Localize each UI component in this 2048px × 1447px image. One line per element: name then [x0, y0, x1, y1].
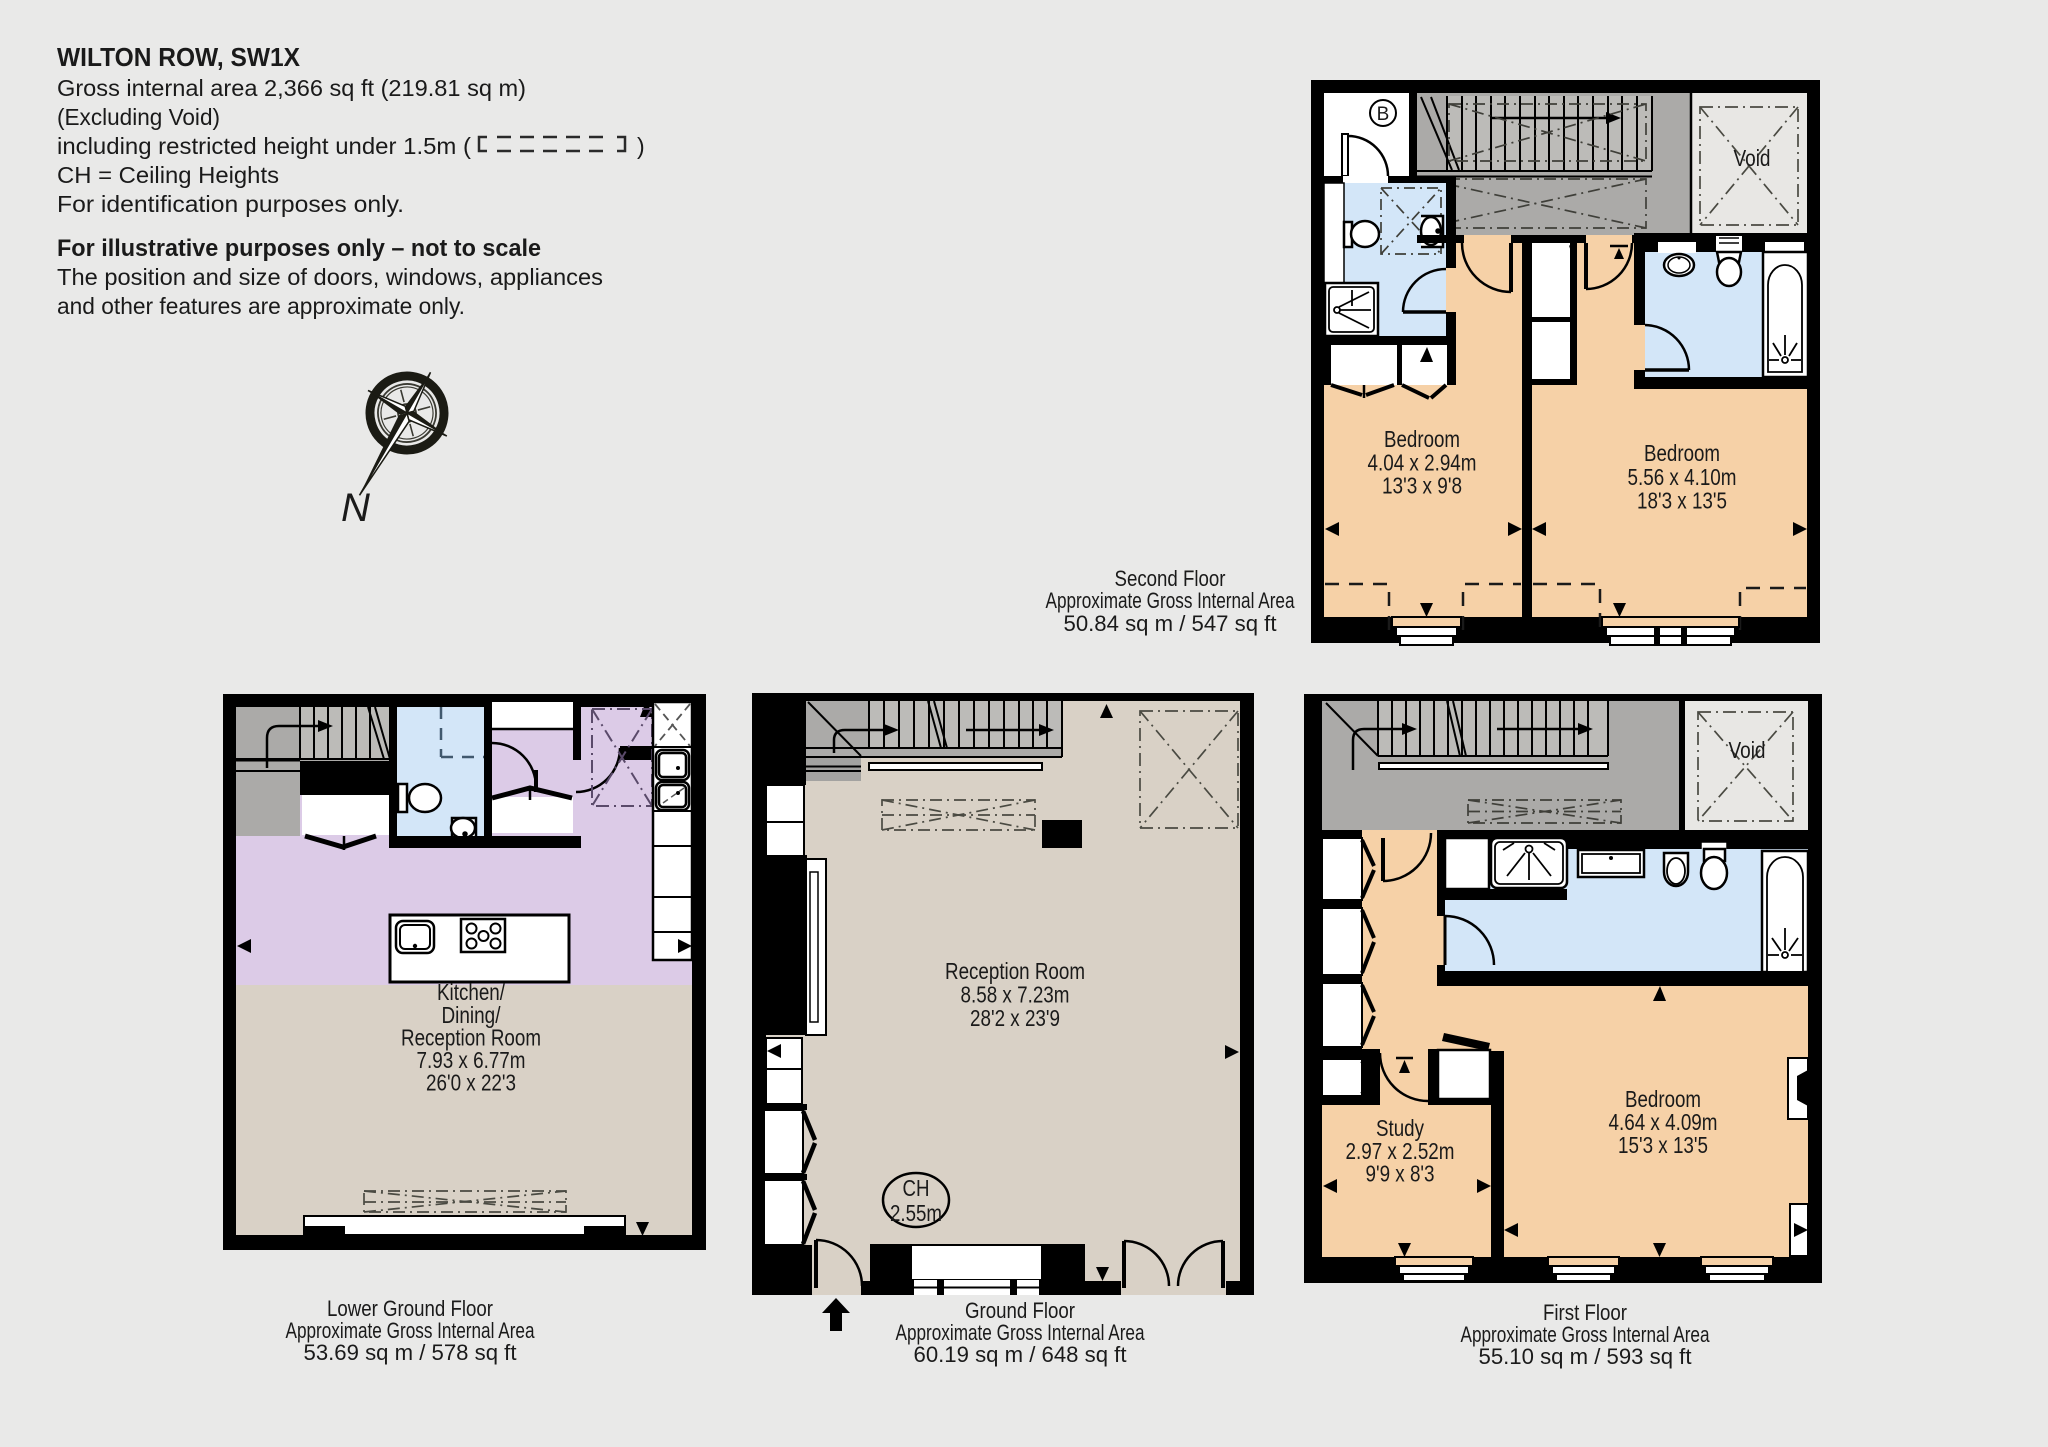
svg-text:): ) — [637, 133, 645, 159]
svg-text:Bedroom: Bedroom — [1384, 426, 1460, 452]
svg-text:including restricted height un: including restricted height under 1.5m ( — [57, 133, 471, 159]
svg-text:and other features are approxi: and other features are approximate only. — [57, 293, 465, 319]
svg-text:For illustrative purposes only: For illustrative purposes only – not to … — [57, 235, 541, 262]
svg-text:5.56 x 4.10m: 5.56 x 4.10m — [1628, 464, 1737, 490]
svg-text:53.69 sq m / 578 sq ft: 53.69 sq m / 578 sq ft — [304, 1340, 517, 1365]
svg-text:B: B — [1377, 104, 1390, 125]
svg-text:CH: CH — [903, 1175, 930, 1201]
svg-text:Reception Room: Reception Room — [945, 958, 1085, 984]
svg-text:26'0 x 22'3: 26'0 x 22'3 — [426, 1070, 516, 1096]
svg-text:50.84 sq m / 547 sq ft: 50.84 sq m / 547 sq ft — [1064, 611, 1277, 636]
svg-text:28'2 x 23'9: 28'2 x 23'9 — [970, 1005, 1060, 1031]
svg-text:Bedroom: Bedroom — [1644, 440, 1720, 466]
svg-text:9'9 x 8'3: 9'9 x 8'3 — [1366, 1161, 1435, 1187]
svg-text:15'3 x 13'5: 15'3 x 13'5 — [1618, 1132, 1708, 1158]
svg-text:Void: Void — [1734, 145, 1771, 171]
svg-text:2.55m: 2.55m — [890, 1200, 942, 1226]
svg-text:Void: Void — [1729, 737, 1766, 763]
svg-text:N: N — [341, 486, 370, 530]
svg-text:CH = Ceiling Heights: CH = Ceiling Heights — [57, 162, 279, 188]
svg-text:Gross internal area 2,366 sq f: Gross internal area 2,366 sq ft (219.81 … — [57, 75, 526, 101]
svg-text:8.58 x 7.23m: 8.58 x 7.23m — [961, 982, 1070, 1008]
svg-text:For identification purposes on: For identification purposes only. — [57, 191, 404, 217]
svg-text:55.10 sq m / 593 sq ft: 55.10 sq m / 593 sq ft — [1479, 1344, 1692, 1369]
svg-text:13'3 x 9'8: 13'3 x 9'8 — [1382, 473, 1462, 499]
svg-text:WILTON ROW, SW1X: WILTON ROW, SW1X — [57, 42, 301, 72]
svg-text:18'3 x 13'5: 18'3 x 13'5 — [1637, 488, 1727, 514]
svg-text:Approximate Gross Internal Are: Approximate Gross Internal Area — [1046, 588, 1296, 613]
svg-text:60.19 sq m / 648 sq ft: 60.19 sq m / 648 sq ft — [914, 1342, 1127, 1367]
svg-text:The position and size of doors: The position and size of doors, windows,… — [57, 264, 603, 290]
svg-text:(Excluding Void): (Excluding Void) — [57, 104, 220, 130]
